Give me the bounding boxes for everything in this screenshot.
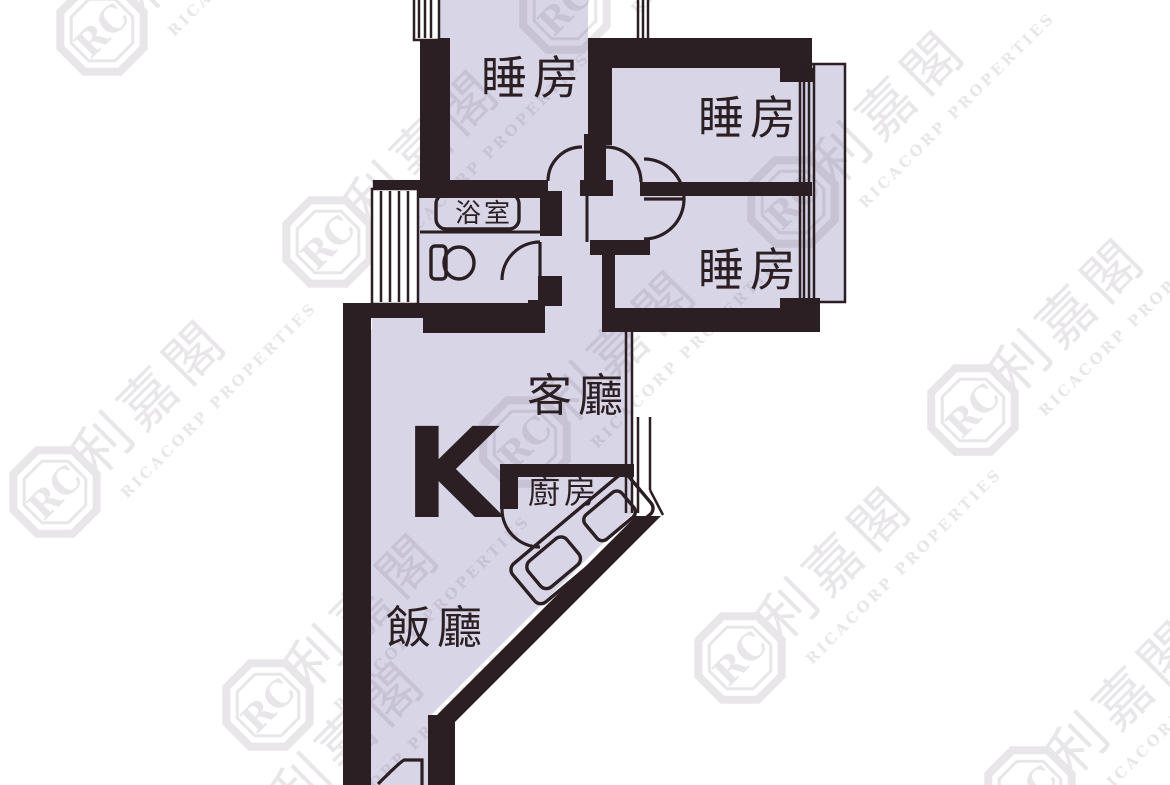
wall-segment	[500, 464, 518, 509]
floorplan-svg: RC 利嘉閣 RICACORP PROPERTIES	[0, 0, 1170, 785]
label-bedroom-top: 睡房	[481, 51, 585, 105]
wall-segment	[590, 240, 650, 255]
wall-segment	[588, 38, 812, 68]
label-living-room: 客廳	[527, 369, 629, 422]
watermark-instance	[971, 539, 1170, 785]
watermark-instance	[0, 239, 321, 564]
wall-segment	[428, 715, 455, 785]
label-bathroom: 浴室	[455, 199, 513, 229]
wall-segment	[640, 182, 812, 196]
wall-segment	[602, 255, 615, 315]
watermark-instance	[43, 0, 368, 102]
window-bathroom-west	[372, 189, 418, 304]
wall-segment	[540, 191, 562, 236]
label-unit-letter: K	[404, 402, 505, 547]
label-bedroom-right-bottom: 睡房	[698, 243, 802, 297]
floorplan-page: RC 利嘉閣 RICACORP PROPERTIES	[0, 0, 1170, 785]
window-top-left	[414, 0, 439, 40]
wall-segment	[602, 308, 820, 332]
label-dining-room: 飯廳	[386, 601, 488, 654]
wall-segment	[343, 303, 371, 785]
label-bedroom-right-top: 睡房	[698, 91, 802, 145]
watermark-instance	[914, 157, 1170, 482]
wall-segment	[580, 180, 613, 196]
wall-segment	[423, 303, 545, 333]
label-kitchen: 廚房	[528, 473, 600, 511]
wall-segment	[420, 38, 450, 198]
